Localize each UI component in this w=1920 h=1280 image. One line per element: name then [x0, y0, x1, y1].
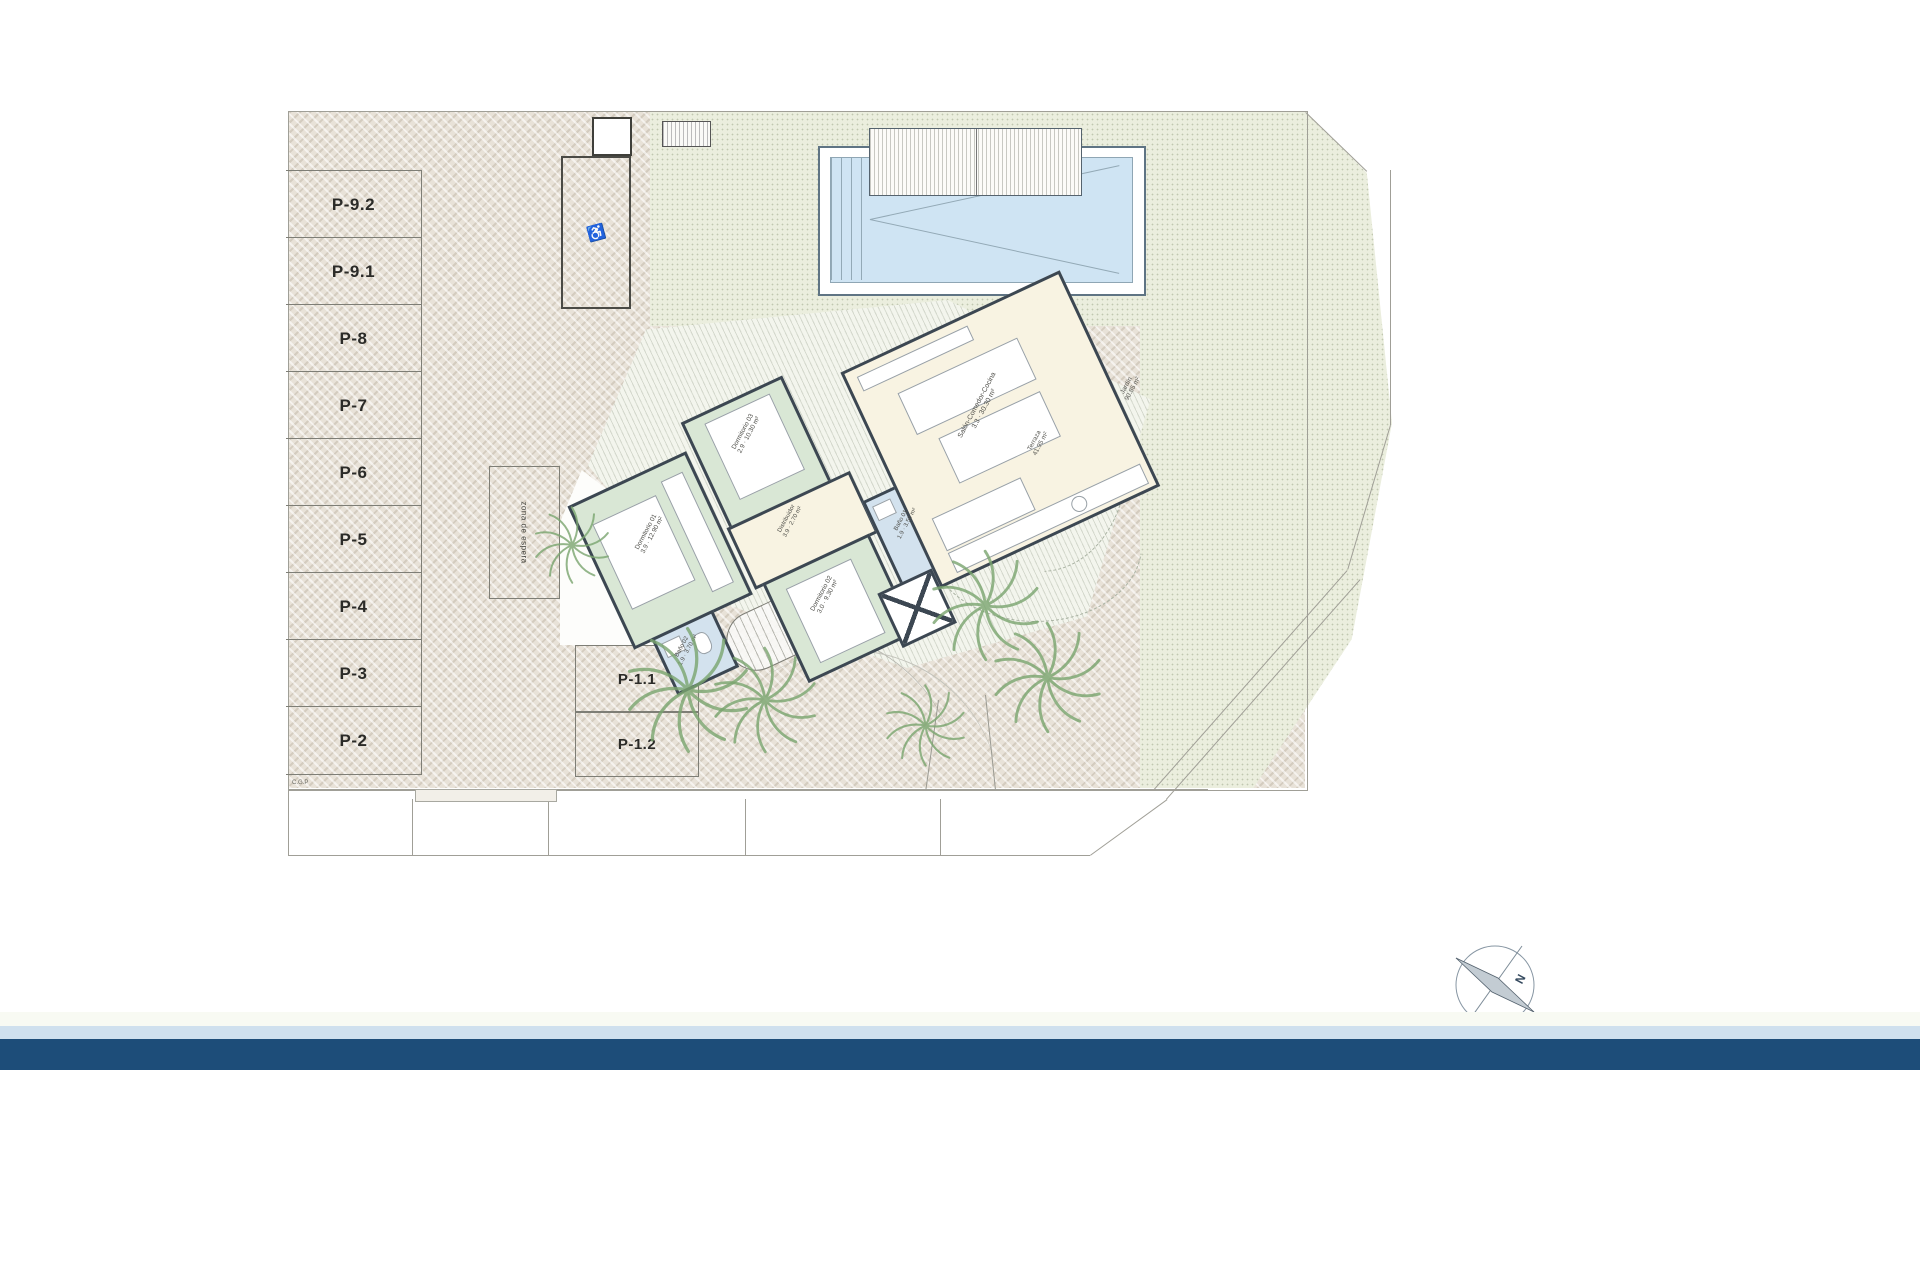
parking-stall: P-4 [286, 572, 422, 640]
footer-lightblue-band [0, 1026, 1920, 1039]
pool-steps [831, 158, 871, 280]
sidewalk-strip [415, 789, 557, 802]
waiting-zone-label: zona de espera [520, 501, 529, 563]
parking-stall: P-6 [286, 438, 422, 506]
accessible-parking-stall: ♿ [561, 156, 631, 309]
parking-stall-label: P-4 [340, 597, 368, 617]
street-tick-3 [745, 799, 746, 855]
pool-deck [869, 128, 1082, 196]
parking-stall-label: P-6 [340, 463, 368, 483]
fern-plant [532, 505, 612, 585]
parking-stall-label: P-9.2 [332, 195, 375, 215]
parking-stall: P-9.2 [286, 170, 422, 238]
parking-stall-label: P-3 [340, 664, 368, 684]
site-plan-page: { "plan": { "parking_spaces": ["P-9.2","… [0, 0, 1920, 1280]
sink [872, 498, 897, 521]
parking-stall-label: P-9.1 [332, 262, 375, 282]
parking-stall-label: P-7 [340, 396, 368, 416]
palm-tree [710, 645, 820, 755]
parking-stall: P-2 [286, 706, 422, 775]
parking-stall: P-3 [286, 639, 422, 707]
footer-navy-band [0, 1039, 1920, 1070]
pool-deck-divider [976, 129, 977, 195]
parking-stall: P-8 [286, 304, 422, 372]
street-tick-2 [548, 799, 549, 855]
parking-stall-label: P-8 [340, 329, 368, 349]
boundary-right-vertical [1390, 170, 1391, 425]
utility-box [592, 117, 632, 156]
parking-stall-label: P-2 [340, 731, 368, 751]
parking-stall: P-5 [286, 505, 422, 573]
parking-stall: P-7 [286, 371, 422, 439]
footer-offwhite-band [0, 1012, 1920, 1026]
parking-stall-label: P-5 [340, 530, 368, 550]
corner-label: C.G.P [292, 780, 308, 786]
palm-tree [990, 620, 1105, 735]
street-tick-1 [412, 799, 413, 855]
street-line-lower [288, 855, 1090, 856]
street-diagonal [1090, 799, 1167, 856]
parking-stall: P-9.1 [286, 237, 422, 305]
ventilation-grille [662, 121, 711, 147]
fern-plant [883, 683, 968, 768]
wheelchair-icon: ♿ [585, 221, 608, 243]
street-left-edge [288, 789, 289, 855]
street-tick-4 [940, 799, 941, 855]
